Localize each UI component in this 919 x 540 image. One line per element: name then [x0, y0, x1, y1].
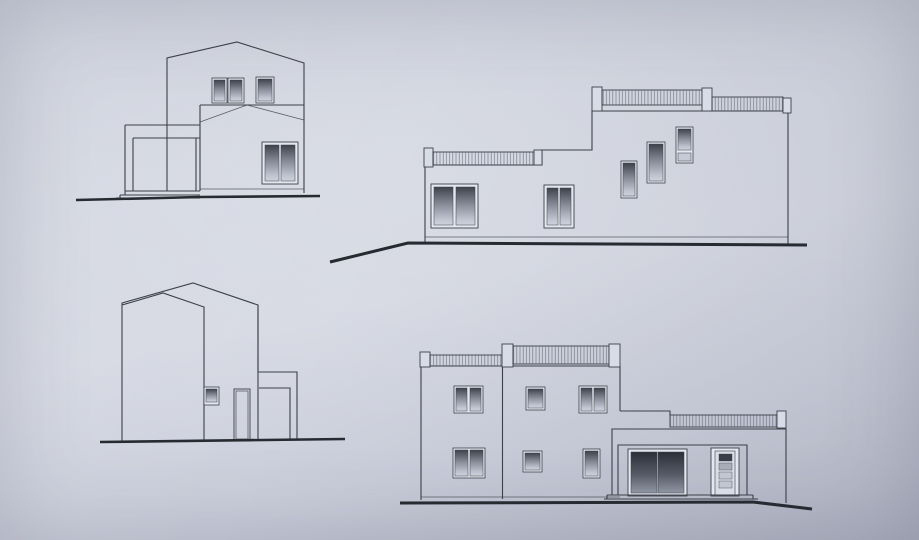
window-glass	[455, 450, 468, 476]
window-glass	[456, 388, 467, 411]
window-glass	[581, 388, 592, 411]
door-glass	[631, 452, 657, 493]
single-story-extension	[604, 411, 786, 503]
entry-door	[234, 389, 250, 441]
lower-roof-railing	[424, 148, 542, 167]
terrain-line	[330, 243, 807, 262]
upper-floor-windows	[454, 386, 607, 413]
window-glass	[649, 144, 663, 181]
railing-post	[424, 148, 433, 167]
ground-floor-double-window	[262, 142, 298, 184]
railing-balustrade	[430, 355, 502, 366]
upper-windows	[212, 77, 274, 103]
roof-railing-left	[420, 352, 502, 367]
upper-roof-railing	[592, 87, 791, 113]
door-panel	[719, 472, 732, 479]
railing-post	[502, 344, 513, 367]
view-side-elevation-porch	[76, 42, 320, 200]
narrow-double-window	[544, 185, 574, 228]
ground-line	[100, 439, 345, 442]
railing-balustrade	[602, 90, 702, 105]
window-glass	[594, 388, 605, 411]
window-glass	[470, 450, 483, 476]
view-front-elevation-with-extension	[400, 344, 812, 509]
small-window	[204, 387, 219, 405]
railing-post	[783, 98, 791, 113]
annex-opening	[259, 388, 290, 440]
railing-post	[777, 411, 786, 428]
window-glass	[281, 145, 295, 181]
window-glass	[560, 188, 571, 225]
hip-roof-band	[200, 105, 304, 122]
window-glass	[434, 187, 453, 225]
ground-floor-windows	[453, 448, 600, 478]
railing-balustrade	[670, 415, 777, 427]
window-glass	[525, 453, 540, 470]
window-glass	[623, 163, 635, 196]
view-long-elevation-split-levels	[330, 87, 807, 262]
staggered-stair-windows	[621, 127, 693, 198]
window-glass	[470, 388, 481, 411]
window-glass	[585, 451, 598, 476]
porch-canopy	[125, 125, 200, 191]
extension-roof-step	[620, 411, 670, 415]
door-leaf	[236, 391, 248, 439]
window-glass	[456, 187, 475, 225]
window-glass	[547, 188, 558, 225]
window-glass	[230, 80, 242, 101]
roof-railing-middle	[502, 344, 620, 367]
window-glass	[528, 389, 543, 408]
sliding-glass-door	[628, 449, 687, 496]
railing-post	[592, 87, 602, 111]
railing-post	[534, 150, 542, 165]
railing-balustrade	[712, 97, 783, 111]
ground-line	[76, 196, 320, 200]
front-gable-volume	[122, 293, 204, 441]
door-panel	[719, 481, 732, 488]
window-glass	[678, 129, 691, 150]
window-glass	[214, 80, 225, 101]
photographed-drawing-sheet	[0, 0, 919, 540]
elevation-sheet	[0, 0, 919, 540]
rear-gable-volume	[122, 283, 258, 441]
door-glass	[658, 452, 684, 493]
panelled-entry-door	[711, 448, 739, 496]
window-bottom-pane	[678, 153, 691, 161]
railing-post	[609, 344, 620, 367]
railing-balustrade	[513, 346, 609, 364]
building-outline	[425, 111, 788, 245]
door-panel	[719, 454, 732, 461]
railing-post	[420, 352, 430, 367]
wide-double-window	[431, 184, 478, 228]
railing-post	[702, 88, 712, 111]
view-side-elevation-twin-gables	[100, 283, 345, 442]
door-panel	[719, 463, 732, 470]
window-glass	[265, 145, 279, 181]
railing-balustrade	[433, 152, 534, 165]
annex-outline	[258, 305, 297, 440]
ground-line	[400, 502, 812, 509]
window-glass	[206, 389, 217, 402]
window-glass	[258, 79, 272, 101]
